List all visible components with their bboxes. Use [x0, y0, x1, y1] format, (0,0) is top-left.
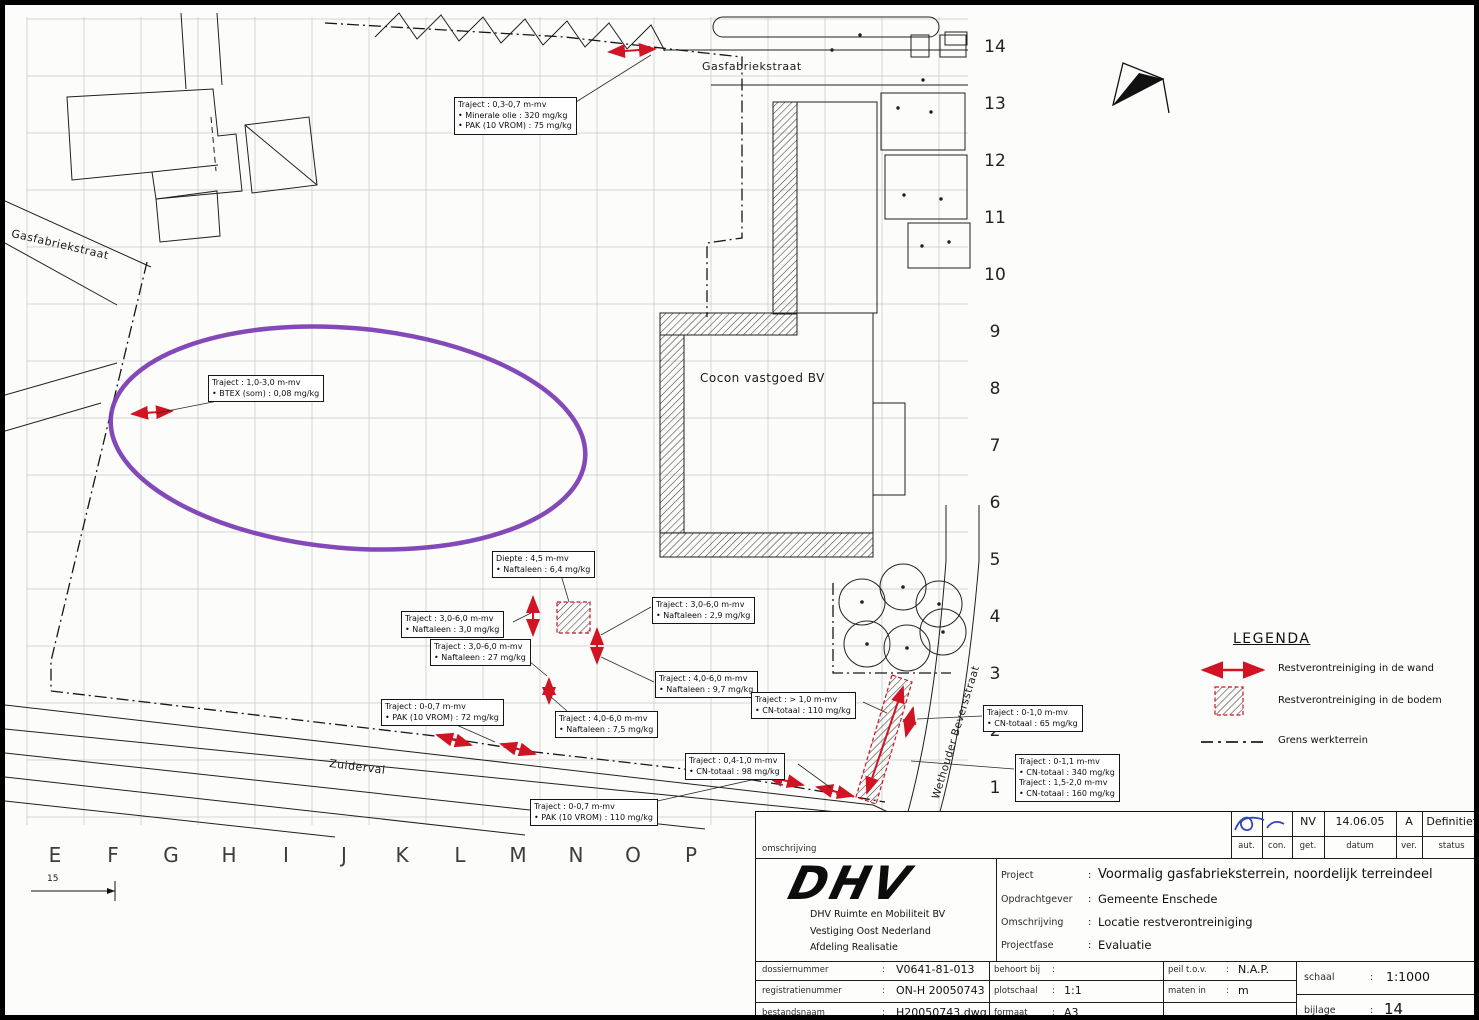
- annotation-box: Traject : 4,0-6,0 m-mv • Naftaleen : 9,7…: [655, 671, 758, 698]
- drawing-sheet: Gasfabriekstraat Gasfabriekstraat Zuider…: [0, 0, 1479, 1020]
- annotation-line: • Naftaleen : 3,0 mg/kg: [405, 625, 499, 636]
- annotation-box: Traject : > 1,0 m-mv • CN-totaal : 110 m…: [751, 692, 856, 719]
- annotation-line: • Naftaleen : 9,7 mg/kg: [659, 685, 753, 696]
- annotation-line: • CN-totaal : 65 mg/kg: [987, 719, 1078, 730]
- dimension-label: 15: [47, 874, 58, 884]
- annotation-line: • PAK (10 VROM) : 72 mg/kg: [385, 713, 499, 724]
- registratienummer-value: ON-H 20050743: [896, 984, 985, 997]
- signature-icon: [1229, 812, 1293, 836]
- peil-label: peil t.o.v.: [1168, 965, 1207, 975]
- dossiernummer-label: dossiernummer: [762, 965, 828, 975]
- omschrijving-label: omschrijving: [762, 844, 816, 854]
- project-label: Project: [1001, 870, 1034, 881]
- annotation-line: Traject : 0-1,0 m-mv: [987, 708, 1078, 719]
- plotschaal-label: plotschaal: [994, 986, 1038, 996]
- annotation-line: • CN-totaal : 98 mg/kg: [689, 767, 780, 778]
- bodem-hatch-icon: [1215, 687, 1243, 715]
- werkterrein-boundary: [51, 23, 951, 802]
- colon: :: [1052, 1008, 1055, 1018]
- grid-letter: G: [156, 843, 186, 867]
- colon: :: [1052, 965, 1055, 975]
- approval-con-label: con.: [1262, 841, 1292, 851]
- peil-value: N.A.P.: [1238, 963, 1269, 976]
- annotation-box: Traject : 1,0-3,0 m-mv • BTEX (som) : 0,…: [208, 375, 324, 402]
- opdrachtgever-value: Gemeente Enschede: [1098, 892, 1217, 906]
- building-label-cocon: Cocon vastgoed BV: [700, 371, 825, 385]
- grid-letter: E: [40, 843, 70, 867]
- colon: :: [1088, 870, 1091, 881]
- annotation-line: • CN-totaal : 110 mg/kg: [755, 706, 851, 717]
- plotschaal-value: 1:1: [1064, 984, 1082, 997]
- annotation-box: Traject : 0,4-1,0 m-mv • CN-totaal : 98 …: [685, 753, 785, 780]
- approval-get-label: get.: [1292, 841, 1324, 851]
- colon: :: [882, 965, 885, 975]
- grid-number: 5: [980, 550, 1010, 570]
- annotation-box: Traject : 0,3-0,7 m-mv • Minerale olie :…: [454, 97, 577, 135]
- grid-letter: N: [561, 843, 591, 867]
- colon: :: [1370, 1005, 1373, 1016]
- annotation-line: • CN-totaal : 340 mg/kg: [1019, 768, 1115, 779]
- omschrijving-row-value: Locatie restverontreiniging: [1098, 915, 1253, 929]
- annotation-line: Traject : 0,3-0,7 m-mv: [458, 100, 572, 111]
- bestandsnaam-value: H20050743.dwg: [896, 1006, 987, 1019]
- annotation-box: Diepte : 4,5 m-mv • Naftaleen : 6,4 mg/k…: [492, 551, 595, 578]
- annotation-line: Traject : 0,4-1,0 m-mv: [689, 756, 780, 767]
- formaat-value: A3: [1064, 1006, 1079, 1019]
- grid-letter: L: [445, 843, 475, 867]
- schaal-value: 1:1000: [1386, 969, 1430, 984]
- approval-ver-label: ver.: [1396, 841, 1422, 851]
- legend-item-wand: Restverontreiniging in de wand: [1278, 663, 1434, 674]
- annotation-line: Traject : 3,0-6,0 m-mv: [434, 642, 526, 653]
- colon: :: [1226, 986, 1229, 996]
- street-label-gasfabriekstraat-top: Gasfabriekstraat: [702, 60, 802, 73]
- annotation-box: Traject : 3,0-6,0 m-mv • Naftaleen : 3,0…: [401, 611, 504, 638]
- approval-status-label: status: [1422, 841, 1479, 851]
- colon: :: [1370, 972, 1373, 983]
- dossiernummer-value: V0641-81-013: [896, 963, 974, 976]
- annotation-box: Traject : 3,0-6,0 m-mv • Naftaleen : 2,9…: [652, 597, 755, 624]
- annotation-line: • Naftaleen : 6,4 mg/kg: [496, 565, 590, 576]
- grid-number: 7: [980, 436, 1010, 456]
- colon: :: [1088, 917, 1091, 928]
- title-block: omschrijving NV 14.06.05 A Definitief au…: [755, 811, 1479, 1020]
- grid-number: 12: [980, 151, 1010, 171]
- grid-number: 3: [980, 664, 1010, 684]
- registratienummer-label: registratienummer: [762, 986, 842, 996]
- annotation-box: Traject : 4,0-6,0 m-mv • Naftaleen : 7,5…: [555, 711, 658, 738]
- behoort-bij-label: behoort bij: [994, 965, 1040, 975]
- grid-number: 14: [980, 37, 1010, 57]
- annotation-line: • BTEX (som) : 0,08 mg/kg: [212, 389, 319, 400]
- annotation-box: Traject : 0-1,0 m-mv • CN-totaal : 65 mg…: [983, 705, 1083, 732]
- north-arrow-icon: [1113, 63, 1169, 113]
- grid-letter: M: [503, 843, 533, 867]
- colon: :: [1226, 965, 1229, 975]
- annotation-box: Traject : 0-0,7 m-mv • PAK (10 VROM) : 1…: [530, 799, 658, 826]
- annotation-line: Traject : 0-0,7 m-mv: [385, 702, 499, 713]
- grid-number: 8: [980, 379, 1010, 399]
- grid-number: 11: [980, 208, 1010, 228]
- approval-datum-value: 14.06.05: [1324, 815, 1396, 828]
- annotation-line: • Naftaleen : 27 mg/kg: [434, 653, 526, 664]
- trees: [839, 564, 966, 671]
- approval-aut-label: aut.: [1231, 841, 1262, 851]
- colon: :: [1088, 894, 1091, 905]
- annotation-line: Traject : 0-0,7 m-mv: [534, 802, 653, 813]
- grid-letter: H: [214, 843, 244, 867]
- dimension-mark: [31, 881, 115, 901]
- annotation-line: Traject : 4,0-6,0 m-mv: [659, 674, 753, 685]
- annotation-line: Traject : 1,5-2,0 m-mv: [1019, 778, 1115, 789]
- opdrachtgever-label: Opdrachtgever: [1001, 894, 1072, 905]
- annotation-line: Traject : 1,0-3,0 m-mv: [212, 378, 319, 389]
- bestandsnaam-label: bestandsnaam: [762, 1008, 825, 1018]
- annotation-line: Traject : > 1,0 m-mv: [755, 695, 851, 706]
- annotation-line: Traject : 3,0-6,0 m-mv: [656, 600, 750, 611]
- colon: :: [1052, 986, 1055, 996]
- grid-letter: P: [676, 843, 706, 867]
- annotation-line: • CN-totaal : 160 mg/kg: [1019, 789, 1115, 800]
- annotation-box: Traject : 0-1,1 m-mv • CN-totaal : 340 m…: [1015, 754, 1120, 802]
- dhv-logo: DHV: [783, 856, 918, 910]
- grid-number: 4: [980, 607, 1010, 627]
- company-name-line: DHV Ruimte en Mobiliteit BV: [810, 909, 945, 920]
- legend-item-bodem: Restverontreiniging in de bodem: [1278, 695, 1442, 706]
- schaal-label: schaal: [1304, 972, 1334, 983]
- colon: :: [882, 986, 885, 996]
- grid-number: 13: [980, 94, 1010, 114]
- grid-number: 1: [980, 778, 1010, 798]
- project-value: Voormalig gasfabrieksterrein, noordelijk…: [1098, 867, 1433, 882]
- grid-letter: I: [271, 843, 301, 867]
- grid-letter: J: [329, 843, 359, 867]
- grid-letter: F: [98, 843, 128, 867]
- grid-number: 6: [980, 493, 1010, 513]
- company-name-line: Vestiging Oost Nederland: [810, 926, 931, 937]
- approval-get-value: NV: [1292, 815, 1324, 828]
- bijlage-label: bijlage: [1304, 1005, 1336, 1016]
- annotation-line: • Naftaleen : 2,9 mg/kg: [656, 611, 750, 622]
- omschrijving-row-label: Omschrijving: [1001, 917, 1063, 928]
- annotation-box: Traject : 3,0-6,0 m-mv • Naftaleen : 27 …: [430, 639, 531, 666]
- approval-status-value: Definitief: [1422, 815, 1479, 828]
- projectfase-label: Projectfase: [1001, 940, 1053, 951]
- grid-number: 10: [980, 265, 1010, 285]
- grid-letter: K: [387, 843, 417, 867]
- buildings: [67, 13, 970, 557]
- approval-datum-label: datum: [1324, 841, 1396, 851]
- annotation-line: Diepte : 4,5 m-mv: [496, 554, 590, 565]
- annotation-line: Traject : 0-1,1 m-mv: [1019, 757, 1115, 768]
- grid-letter: O: [618, 843, 648, 867]
- annotation-box: Traject : 0-0,7 m-mv • PAK (10 VROM) : 7…: [381, 699, 504, 726]
- maten-in-label: maten in: [1168, 986, 1206, 996]
- annotation-line: • Minerale olie : 320 mg/kg: [458, 111, 572, 122]
- annotation-line: Traject : 4,0-6,0 m-mv: [559, 714, 653, 725]
- annotation-line: • PAK (10 VROM) : 110 mg/kg: [534, 813, 653, 824]
- maten-in-value: m: [1238, 984, 1249, 997]
- colon: :: [1088, 940, 1091, 951]
- approval-ver-value: A: [1396, 815, 1422, 828]
- projectfase-value: Evaluatie: [1098, 938, 1151, 952]
- bijlage-value: 14: [1384, 1000, 1403, 1018]
- annotation-line: • PAK (10 VROM) : 75 mg/kg: [458, 121, 572, 132]
- formaat-label: formaat: [994, 1008, 1028, 1018]
- legend-item-grens: Grens werkterrein: [1278, 735, 1368, 746]
- colon: :: [882, 1008, 885, 1018]
- grid-number: 9: [980, 322, 1010, 342]
- legend: LEGENDA Restverontreiniging in de wand R…: [1190, 627, 1479, 757]
- annotation-line: Traject : 3,0-6,0 m-mv: [405, 614, 499, 625]
- annotation-line: • Naftaleen : 7,5 mg/kg: [559, 725, 653, 736]
- company-name-line: Afdeling Realisatie: [810, 942, 898, 953]
